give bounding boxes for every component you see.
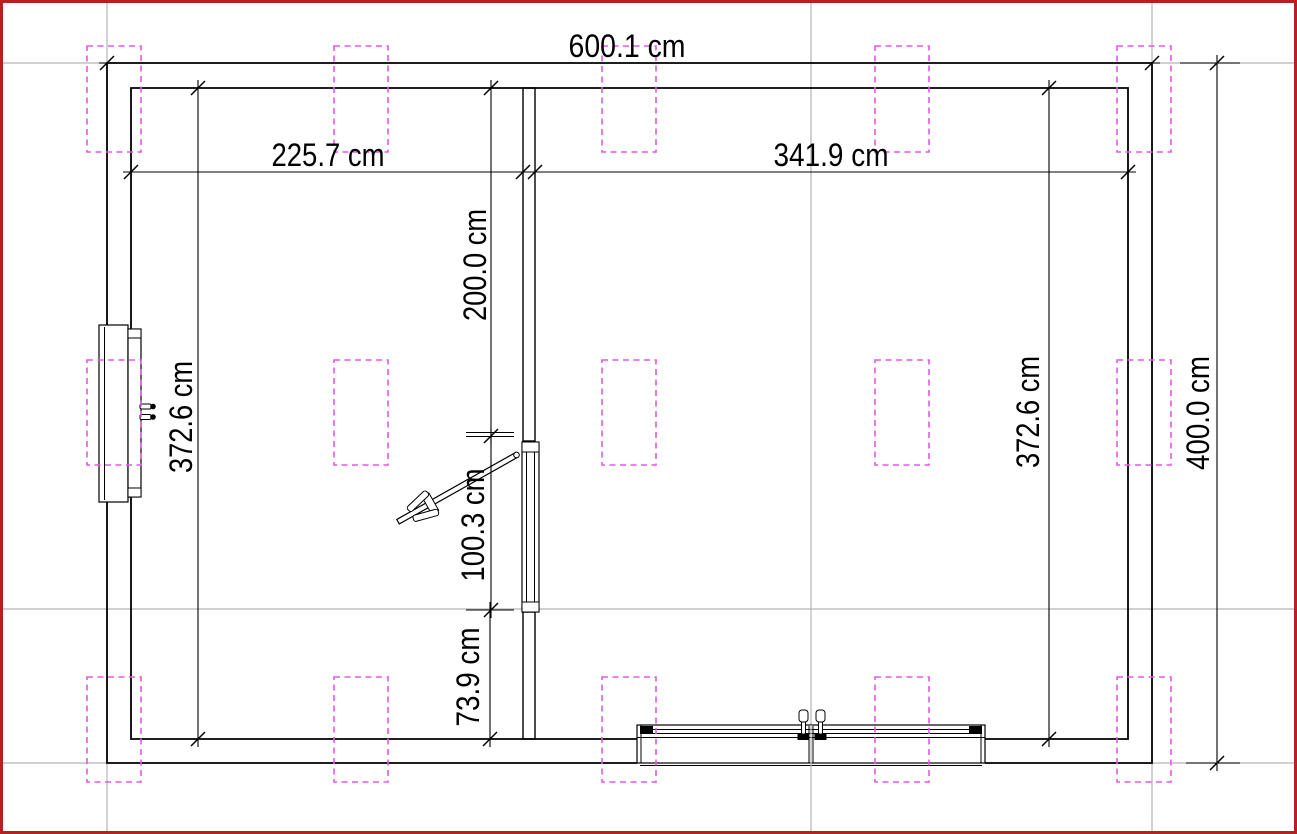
dim-door-offset-top[interactable]: 200.0 cm bbox=[457, 80, 514, 444]
dimension-label-total-width[interactable]: 600.1 cm bbox=[569, 28, 686, 64]
dimension-label-left-room-width[interactable]: 225.7 cm bbox=[272, 137, 385, 173]
dimension-label-right-room-width[interactable]: 341.9 cm bbox=[774, 137, 889, 173]
dim-right-room-depth[interactable]: 372.6 cm bbox=[1010, 80, 1056, 747]
door-frame bbox=[522, 442, 539, 612]
dim-door-offset-bottom[interactable]: 73.9 cm bbox=[450, 602, 497, 747]
dim-total-height[interactable]: 400.0 cm bbox=[1180, 55, 1240, 771]
dim-left-room-width[interactable]: 225.7 cm bbox=[123, 137, 531, 179]
light-fixture[interactable] bbox=[875, 360, 929, 465]
floor-plan-canvas: 600.1 cm 225.7 cm 341.9 cm 372.6 cm 200.… bbox=[0, 0, 1297, 834]
left-window[interactable] bbox=[99, 325, 156, 502]
dim-right-room-width[interactable]: 341.9 cm bbox=[527, 137, 1136, 179]
dimension-label-total-height[interactable]: 400.0 cm bbox=[1180, 356, 1216, 470]
dim-left-room-depth[interactable]: 372.6 cm bbox=[163, 80, 205, 747]
light-fixture[interactable] bbox=[334, 360, 388, 465]
light-fixture[interactable] bbox=[1117, 360, 1171, 465]
light-fixture[interactable] bbox=[602, 360, 656, 465]
left-window-sash bbox=[128, 329, 141, 497]
light-fixture[interactable] bbox=[87, 677, 141, 782]
dimension-label-door-offset-bottom[interactable]: 73.9 cm bbox=[450, 628, 486, 727]
interior-wall[interactable] bbox=[523, 88, 535, 739]
exterior-walls[interactable] bbox=[107, 63, 1152, 763]
light-fixture[interactable] bbox=[1117, 677, 1171, 782]
dimension-label-right-room-depth[interactable]: 372.6 cm bbox=[1010, 356, 1046, 468]
dim-door-opening-width[interactable]: 100.3 cm bbox=[455, 428, 514, 618]
light-fixture[interactable] bbox=[334, 677, 388, 782]
light-fixture[interactable] bbox=[87, 46, 141, 152]
light-fixture[interactable] bbox=[1117, 46, 1171, 152]
dimension-label-door-offset-top[interactable]: 200.0 cm bbox=[457, 209, 493, 321]
left-window-handles bbox=[140, 404, 156, 420]
floor-plan-page: 600.1 cm 225.7 cm 341.9 cm 372.6 cm 200.… bbox=[0, 0, 1297, 834]
dimension-label-left-room-depth[interactable]: 372.6 cm bbox=[163, 361, 199, 473]
left-window-frame bbox=[99, 325, 128, 502]
ceiling-fixtures bbox=[87, 46, 1171, 782]
dimension-label-door-opening-width[interactable]: 100.3 cm bbox=[455, 469, 491, 582]
